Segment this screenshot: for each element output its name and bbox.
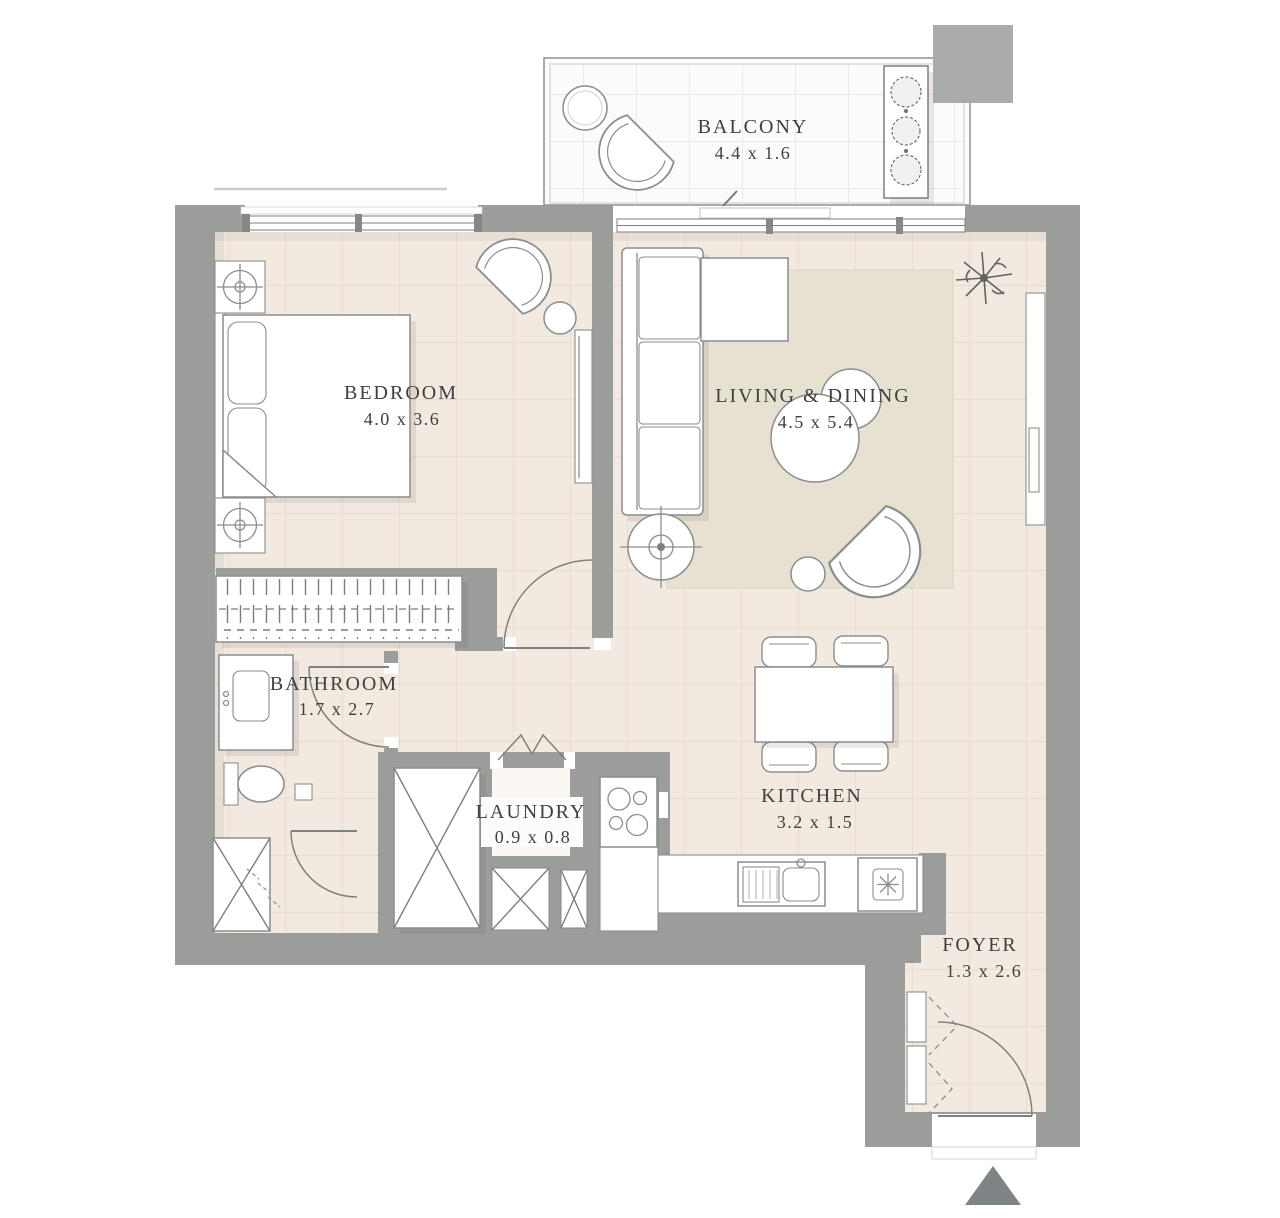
laundry-dimensions: 0.9 x 0.8 <box>495 827 572 847</box>
balcony-dimensions: 4.4 x 1.6 <box>715 143 792 163</box>
bedroom-window-sill <box>241 207 482 214</box>
foyer-closet-panel-1 <box>907 992 926 1042</box>
nightstand-top <box>215 261 265 313</box>
foyer-closet-panel-2 <box>907 1046 926 1104</box>
kitchen-label: KITCHEN <box>761 785 863 807</box>
entrance-threshold <box>932 1147 1036 1159</box>
shaft-box <box>394 768 480 928</box>
bathroom-label: BATHROOM <box>270 673 398 695</box>
floor-plan-svg: BALCONY 4.4 x 1.6 BEDROOM 4.0 x 3.6 LIVI… <box>0 0 1280 1218</box>
bedroom-side-table <box>544 302 576 334</box>
laundry-shaft-1 <box>492 868 549 930</box>
balcony-planter <box>884 66 934 204</box>
sofa <box>622 248 709 521</box>
shower <box>213 838 270 931</box>
chaise-ottoman <box>701 258 788 341</box>
living-side-table <box>791 557 825 591</box>
bedroom-dresser <box>575 330 592 483</box>
dishwasher <box>858 858 917 911</box>
coffee-table-large <box>771 394 859 482</box>
bedroom-window <box>242 214 482 232</box>
living-dining-dimensions: 4.5 x 5.4 <box>778 412 855 432</box>
foyer-dimensions: 1.3 x 2.6 <box>946 961 1023 981</box>
living-dining-label: LIVING & DINING <box>715 385 911 407</box>
laundry-shaft-2 <box>561 870 587 928</box>
balcony-table <box>563 86 607 130</box>
kitchen-sink <box>738 859 825 906</box>
floor-plan: BALCONY 4.4 x 1.6 BEDROOM 4.0 x 3.6 LIVI… <box>0 0 1280 1218</box>
bathroom-vanity <box>219 655 299 756</box>
nightstand-bottom <box>215 498 265 553</box>
balcony-label: BALCONY <box>698 116 809 138</box>
laundry-label: LAUNDRY <box>476 801 587 823</box>
bedroom-label: BEDROOM <box>344 382 458 404</box>
cooktop <box>600 777 657 847</box>
dining-table <box>755 667 893 742</box>
tv-console <box>1026 293 1045 525</box>
bed <box>215 313 410 499</box>
entrance-opening <box>932 1114 1036 1147</box>
bedroom-dimensions: 4.0 x 3.6 <box>364 409 441 429</box>
kitchen-dimensions: 3.2 x 1.5 <box>777 812 854 832</box>
wardrobe <box>216 576 468 648</box>
foyer-label: FOYER <box>942 934 1018 956</box>
bathroom-dimensions: 1.7 x 2.7 <box>299 699 376 719</box>
north-arrow-icon <box>965 1166 1021 1205</box>
corner-block <box>933 25 1013 103</box>
